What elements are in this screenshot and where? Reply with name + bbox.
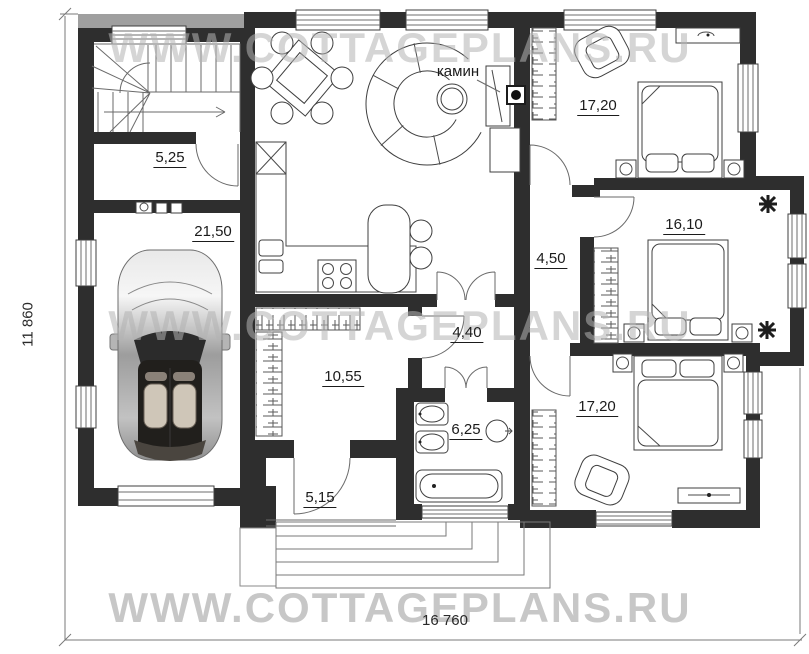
entrance-threshold bbox=[266, 520, 396, 526]
door-bedroom-middle bbox=[594, 197, 634, 237]
stove-icon bbox=[318, 260, 356, 292]
armchair-bottom bbox=[571, 451, 633, 509]
kitchen-counter bbox=[256, 142, 432, 293]
garage-door bbox=[118, 486, 214, 506]
window bbox=[76, 386, 96, 428]
plant-icon bbox=[759, 195, 777, 213]
boiler-equipment-icons bbox=[136, 202, 182, 213]
door-bedroom-bottom bbox=[530, 356, 570, 396]
dresser-bottom bbox=[678, 488, 740, 503]
bathtub-icon bbox=[416, 470, 502, 502]
room-label-hallway: 4,40 bbox=[450, 324, 483, 343]
vent-shaft-icon bbox=[256, 142, 286, 174]
window bbox=[422, 506, 508, 518]
car bbox=[110, 250, 230, 461]
room-label-boiler-room: 5,25 bbox=[153, 149, 186, 168]
watermark-bottom: WWW.COTTAGEPLANS.RU bbox=[108, 584, 691, 632]
room-label-vestibule: 5,15 bbox=[303, 489, 336, 508]
room-label-bathroom: 6,25 bbox=[449, 421, 482, 440]
dimension-label-vertical: 11 860 bbox=[20, 285, 37, 365]
window bbox=[744, 420, 762, 458]
door-bedroom-top bbox=[530, 145, 570, 185]
dimension-label-horizontal: 16 760 bbox=[405, 612, 485, 629]
entrance-steps bbox=[240, 522, 550, 588]
bed-bottom bbox=[613, 354, 743, 450]
sink-icon bbox=[416, 403, 448, 425]
room-label-bedroom-top: 17,20 bbox=[577, 97, 619, 116]
nightstand bbox=[732, 324, 752, 342]
room-label-garage: 21,50 bbox=[192, 223, 234, 242]
watermark-middle: WWW.COTTAGEPLANS.RU bbox=[108, 302, 691, 350]
room-label-corridor: 4,50 bbox=[534, 250, 567, 269]
room-label-bedroom-bottom: 17,20 bbox=[576, 398, 618, 417]
nightstand bbox=[613, 354, 632, 372]
kitchen-sink-icon bbox=[259, 240, 283, 273]
window bbox=[738, 64, 758, 132]
nightstand bbox=[616, 160, 636, 178]
window bbox=[788, 214, 806, 258]
window bbox=[744, 372, 762, 414]
window bbox=[596, 512, 672, 526]
toilet-icon bbox=[486, 420, 512, 442]
nightstand bbox=[724, 160, 744, 178]
bed-top bbox=[616, 82, 744, 178]
window bbox=[788, 264, 806, 308]
door-boiler bbox=[196, 144, 238, 186]
sink-icon bbox=[416, 431, 448, 453]
nightstand bbox=[724, 354, 743, 372]
door-living-double bbox=[437, 272, 495, 300]
room-label-wardrobe-room: 10,55 bbox=[322, 368, 364, 387]
room-label-bedroom-middle: 16,10 bbox=[663, 216, 705, 235]
plant-icon bbox=[758, 321, 776, 339]
window bbox=[76, 240, 96, 286]
wardrobe-hatch bbox=[532, 410, 556, 506]
fireplace-label: камин bbox=[437, 63, 479, 80]
watermark-top: WWW.COTTAGEPLANS.RU bbox=[108, 24, 691, 72]
coffee-table bbox=[437, 84, 467, 114]
door-bathroom-double bbox=[445, 367, 487, 388]
bar-stools bbox=[410, 220, 432, 269]
floor-plan-page: WWW.COTTAGEPLANS.RU WWW.COTTAGEPLANS.RU … bbox=[0, 0, 809, 654]
